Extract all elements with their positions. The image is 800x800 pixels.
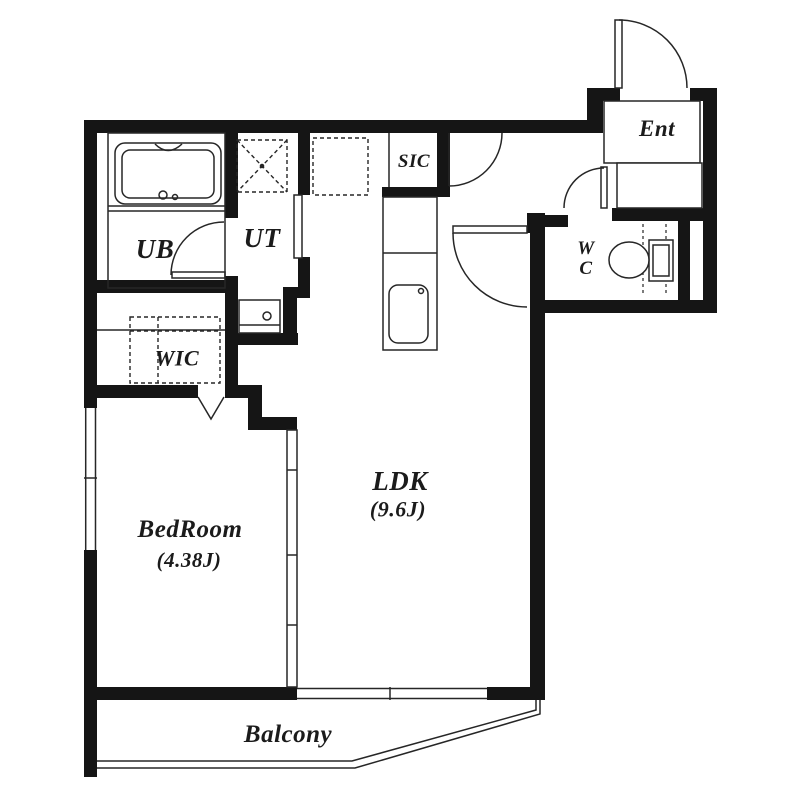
balcony-window [297, 687, 487, 700]
wall-left-lower [84, 550, 97, 777]
wall-left-upper [84, 120, 97, 408]
label-sic: SIC [398, 152, 430, 172]
sic-door [449, 133, 502, 186]
wall-wc-bottom [543, 300, 717, 313]
wall-sic-bottom [382, 187, 450, 197]
ub-door [171, 222, 225, 278]
wc-door [564, 167, 607, 208]
wall-ub-ut-top [225, 133, 238, 218]
wall-top-main [84, 120, 600, 133]
ut-sliding-door [294, 195, 302, 258]
bedroom-door-mark [198, 397, 224, 419]
washing-machine-pan [237, 140, 287, 192]
bathtub-faucet [173, 195, 178, 200]
label-balcony: Balcony [244, 722, 332, 748]
bathtub-outer [115, 143, 221, 204]
refrigerator-space [313, 138, 368, 195]
ldk-door [453, 226, 527, 307]
label-bedroom: BedRoom [138, 517, 243, 543]
floorplan-drawing [0, 0, 800, 800]
wall-wc-top-left [543, 215, 568, 227]
wall-right-outer [703, 88, 717, 313]
wall-wc-partition [678, 221, 690, 300]
wall-wic-bottom [84, 385, 198, 398]
wall-ent-top-left [587, 88, 620, 101]
label-wic: WIC [155, 346, 199, 369]
wall-ut-right-top [298, 133, 310, 195]
bathtub-inner [122, 150, 214, 198]
label-ldk-area: (9.6J) [370, 497, 426, 520]
sliding-partition [287, 430, 297, 687]
kitchen-counter [383, 197, 437, 350]
entrance-door [615, 20, 687, 88]
wall-ub-bottom [84, 280, 237, 293]
wall-entry-jog-horiz [258, 417, 297, 430]
wall-nook-bottom [225, 333, 298, 345]
label-bedroom-area: (4.38J) [157, 549, 222, 571]
entry-step [617, 163, 702, 208]
wall-bedroom-bottom [84, 687, 297, 700]
wall-ldk-bottom-right [487, 687, 543, 700]
toilet-bowl [609, 242, 649, 278]
label-wc: W C [577, 239, 594, 279]
label-ut: UT [244, 224, 281, 252]
label-wc-line2: C [577, 259, 594, 279]
washbasin [239, 300, 280, 333]
label-wc-line1: W [577, 239, 594, 259]
wall-ldk-right [530, 213, 545, 700]
bedroom-window [84, 408, 97, 550]
label-ldk: LDK [372, 467, 428, 495]
label-ent: Ent [639, 117, 675, 141]
wall-ldk-door-stub [527, 213, 545, 233]
toilet [609, 224, 673, 296]
wall-ut-right-bottom [298, 257, 310, 290]
unit-bath [108, 133, 225, 288]
floorplan: UB UT SIC Ent W C WIC BedRoom (4.38J) LD… [0, 0, 800, 800]
label-ub: UB [136, 235, 175, 263]
wall-wc-top-right [612, 208, 704, 221]
